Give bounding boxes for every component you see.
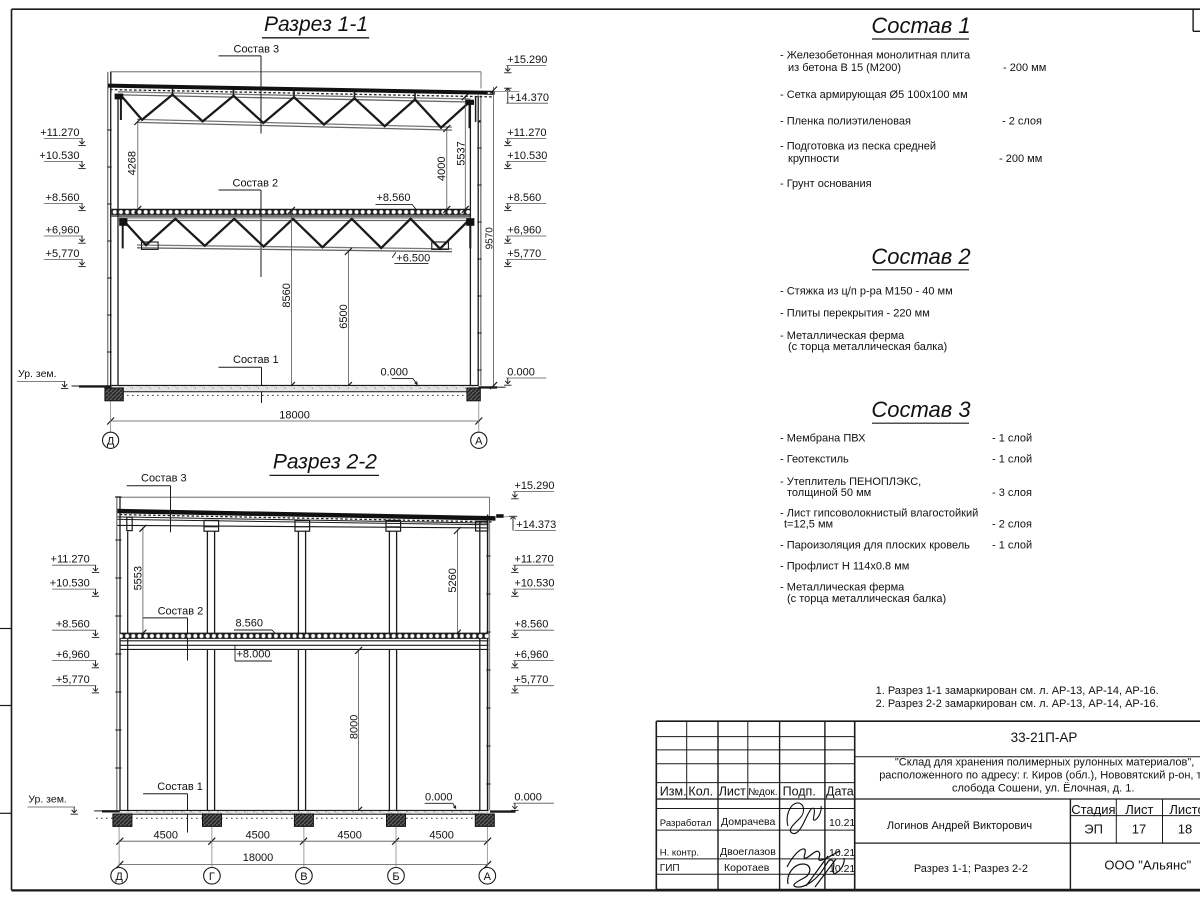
svg-text:слобода Сошени, ул. Ёлочная, д: слобода Сошени, ул. Ёлочная, д. 1. — [952, 782, 1135, 794]
svg-text:+6.500: +6.500 — [396, 252, 430, 264]
svg-text:+6,960: +6,960 — [56, 649, 90, 661]
svg-text:Лист: Лист — [719, 784, 746, 798]
svg-text:Н. контр.: Н. контр. — [660, 848, 699, 859]
svg-text:+5,770: +5,770 — [56, 674, 90, 686]
svg-text:- Плиты перекрытия - 220 мм: - Плиты перекрытия - 220 мм — [780, 308, 930, 320]
svg-text:+10.530: +10.530 — [50, 578, 90, 590]
svg-text:Б: Б — [392, 871, 399, 883]
svg-text:- Железобетонная монолитная п: - Железобетонная монолитная плита — [780, 50, 971, 62]
svg-text:+8.560: +8.560 — [514, 619, 548, 631]
svg-text:ГИП: ГИП — [660, 863, 680, 874]
svg-text:толщиной 50 мм: толщиной 50 мм — [787, 487, 871, 499]
svg-text:9570: 9570 — [484, 227, 495, 250]
svg-text:- 3 слоя: - 3 слоя — [992, 487, 1032, 499]
svg-text:5260: 5260 — [447, 568, 459, 592]
svg-text:4000: 4000 — [436, 157, 448, 181]
svg-text:+14.370: +14.370 — [509, 92, 549, 104]
svg-text:- 2 слоя: - 2 слоя — [1002, 116, 1042, 128]
svg-text:2. Разрез 2-2 замаркирован см.: 2. Разрез 2-2 замаркирован см. л. АР-13,… — [876, 698, 1159, 710]
svg-text:0.000: 0.000 — [425, 792, 453, 804]
svg-text:Д: Д — [115, 871, 123, 883]
svg-text:4268: 4268 — [126, 151, 138, 175]
svg-text:Разрез 2-2: Разрез 2-2 — [273, 450, 377, 473]
svg-text:+11.270: +11.270 — [51, 554, 90, 566]
svg-text:+6,960: +6,960 — [46, 224, 80, 236]
svg-text:Разрез 1-1: Разрез 1-1 — [264, 13, 368, 36]
svg-text:8000: 8000 — [348, 715, 360, 739]
svg-text:- Металлическая ферма: - Металлическая ферма — [780, 582, 905, 594]
svg-text:Кол.: Кол. — [688, 784, 713, 798]
svg-text:4500: 4500 — [154, 830, 178, 842]
svg-text:8560: 8560 — [281, 283, 293, 307]
svg-text:А: А — [475, 435, 483, 447]
svg-text:Коротаев: Коротаев — [724, 862, 770, 874]
svg-text:1. Разрез 1-1 замаркирован см.: 1. Разрез 1-1 замаркирован см. л. АР-13,… — [876, 685, 1159, 697]
svg-text:+5,770: +5,770 — [507, 248, 541, 260]
svg-text:- 200 мм: - 200 мм — [999, 153, 1042, 165]
svg-text:А: А — [484, 871, 492, 883]
svg-text:- Металлическая ферма: - Металлическая ферма — [780, 330, 905, 342]
svg-text:Состав 1: Состав 1 — [871, 13, 970, 38]
svg-text:+11.270: +11.270 — [514, 554, 553, 566]
svg-text:Стадия: Стадия — [1071, 802, 1115, 817]
svg-text:5553: 5553 — [133, 566, 145, 590]
svg-text:Листов: Листов — [1169, 802, 1200, 817]
svg-text:расположенного по адресу: г. К: расположенного по адресу: г. Киров (обл.… — [879, 770, 1200, 782]
svg-text:Ур. зем.: Ур. зем. — [18, 368, 57, 380]
svg-text:Состав 3: Состав 3 — [234, 43, 280, 55]
svg-text:+5,770: +5,770 — [46, 248, 80, 260]
svg-text:6500: 6500 — [338, 304, 350, 328]
svg-text:- Стяжка из ц/п р-ра М150 - 40: - Стяжка из ц/п р-ра М150 - 40 мм — [780, 286, 953, 298]
svg-text:Состав 3: Состав 3 — [871, 397, 971, 422]
svg-text:+6,960: +6,960 — [514, 649, 548, 661]
svg-text:Разработал: Разработал — [660, 818, 712, 829]
svg-text:Разрез 1-1; Разрез 2-2: Разрез 1-1; Разрез 2-2 — [914, 863, 1028, 875]
svg-text:(с торца металлическая балка): (с торца металлическая балка) — [788, 341, 947, 353]
svg-text:4500: 4500 — [337, 830, 361, 842]
svg-text:18: 18 — [1178, 821, 1192, 836]
svg-text:- 1 слой: - 1 слой — [992, 540, 1032, 552]
svg-text:18000: 18000 — [243, 852, 274, 864]
svg-text:5537: 5537 — [455, 141, 467, 165]
svg-text:№док.: №док. — [748, 787, 777, 798]
svg-text:- 1 слой: - 1 слой — [992, 432, 1032, 444]
svg-text:из бетона В 15 (М200): из бетона В 15 (М200) — [788, 62, 901, 74]
svg-text:+6,960: +6,960 — [507, 224, 541, 236]
svg-text:+8.560: +8.560 — [377, 192, 411, 204]
svg-text:Домрачева: Домрачева — [721, 816, 776, 828]
svg-text:Состав 1: Состав 1 — [233, 354, 279, 366]
svg-text:Г: Г — [209, 871, 215, 883]
svg-text:- Геотекстиль: - Геотекстиль — [780, 453, 849, 465]
svg-text:4500: 4500 — [429, 830, 453, 842]
svg-text:Подп.: Подп. — [783, 784, 816, 798]
svg-text:- 1 слой: - 1 слой — [992, 453, 1032, 465]
svg-text:В: В — [300, 871, 307, 883]
svg-text:Состав 3: Состав 3 — [141, 473, 187, 485]
svg-text:17: 17 — [1132, 821, 1146, 836]
svg-text:ЭП: ЭП — [1084, 821, 1103, 836]
svg-text:- Пароизоляция для плоских кро: - Пароизоляция для плоских кровель — [780, 540, 970, 552]
svg-text:Д: Д — [107, 435, 115, 447]
svg-text:+8.000: +8.000 — [237, 649, 271, 661]
svg-text:- 2 слоя: - 2 слоя — [992, 519, 1032, 531]
svg-text:+15.290: +15.290 — [514, 480, 554, 492]
svg-text:0.000: 0.000 — [507, 366, 535, 378]
svg-text:0.000: 0.000 — [514, 792, 542, 804]
svg-text:(с торца металлическая балка): (с торца металлическая балка) — [787, 593, 946, 605]
svg-text:+5,770: +5,770 — [514, 674, 548, 686]
svg-text:10.21: 10.21 — [829, 847, 855, 859]
svg-text:18000: 18000 — [279, 409, 310, 421]
svg-text:- Подготовка из песка средней: - Подготовка из песка средней — [780, 141, 936, 153]
svg-text:- Грунт основания: - Грунт основания — [780, 178, 872, 190]
svg-text:Состав 1: Состав 1 — [157, 781, 203, 793]
svg-text:Лист: Лист — [1125, 802, 1153, 817]
svg-text:- Мембрана ПВХ: - Мембрана ПВХ — [780, 432, 866, 444]
svg-text:+10.530: +10.530 — [514, 578, 554, 590]
svg-text:Двоеглазов: Двоеглазов — [720, 846, 776, 858]
svg-text:+8.560: +8.560 — [46, 192, 80, 204]
svg-text:0.000: 0.000 — [381, 366, 409, 378]
svg-text:ООО "Альянс": ООО "Альянс" — [1104, 858, 1191, 873]
svg-text:t=12,5 мм: t=12,5 мм — [784, 519, 833, 531]
svg-text:- Профлист Н 114х0.8 мм: - Профлист Н 114х0.8 мм — [780, 561, 909, 573]
svg-text:- Сетка армирующая Ø5 100х100: - Сетка армирующая Ø5 100х100 мм — [780, 89, 968, 101]
svg-text:Состав 2: Состав 2 — [871, 244, 970, 269]
svg-text:Изм.: Изм. — [660, 784, 687, 798]
svg-text:Дата: Дата — [826, 784, 854, 798]
svg-text:крупности: крупности — [788, 153, 839, 165]
svg-text:+11.270: +11.270 — [40, 127, 79, 139]
svg-text:Ур. зем.: Ур. зем. — [28, 794, 67, 806]
svg-text:Состав 2: Состав 2 — [158, 605, 204, 617]
svg-text:33-21П-АР: 33-21П-АР — [1011, 730, 1078, 745]
svg-text:"Склад для хранения полимерных: "Склад для хранения полимерных рулонных … — [895, 757, 1194, 769]
svg-text:+8.560: +8.560 — [507, 192, 541, 204]
svg-text:- Пленка полиэтиленовая: - Пленка полиэтиленовая — [780, 116, 911, 128]
svg-text:+10.530: +10.530 — [39, 150, 79, 162]
svg-text:+11.270: +11.270 — [507, 127, 546, 139]
svg-text:8.560: 8.560 — [236, 618, 264, 630]
svg-text:+10.530: +10.530 — [507, 150, 547, 162]
svg-text:Логинов Андрей Викторович: Логинов Андрей Викторович — [887, 820, 1032, 832]
svg-text:+15.290: +15.290 — [507, 54, 547, 66]
svg-text:10.21: 10.21 — [829, 817, 855, 829]
svg-text:4500: 4500 — [245, 830, 269, 842]
svg-text:Состав 2: Состав 2 — [233, 177, 279, 189]
svg-text:+14.373: +14.373 — [516, 519, 556, 531]
svg-text:- 200 мм: - 200 мм — [1003, 62, 1046, 74]
svg-text:+8.560: +8.560 — [56, 619, 90, 631]
